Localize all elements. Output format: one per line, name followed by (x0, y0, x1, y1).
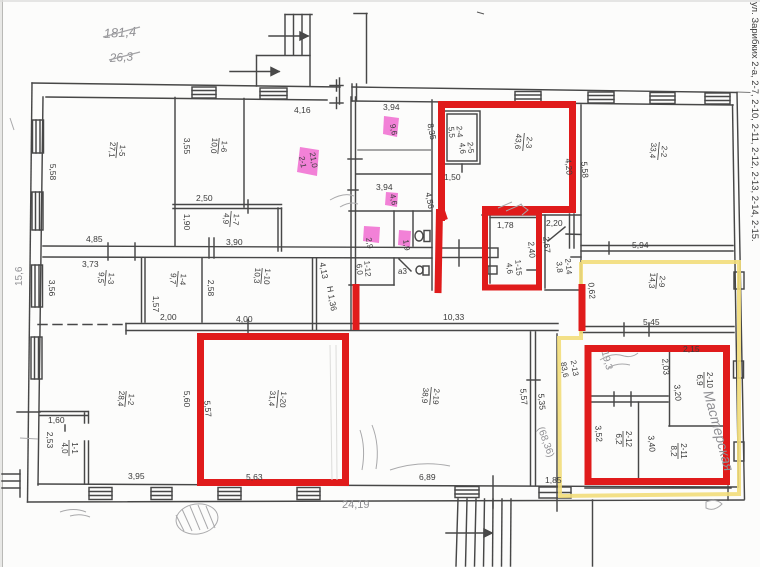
svg-text:2,03: 2,03 (660, 358, 671, 376)
svg-text:2,00: 2,00 (160, 312, 177, 322)
svg-text:24,19: 24,19 (342, 499, 370, 511)
svg-text:2,50: 2,50 (196, 193, 213, 203)
svg-text:9,7: 9,7 (168, 273, 178, 285)
svg-text:5,58: 5,58 (579, 161, 590, 179)
svg-text:3,55: 3,55 (182, 138, 192, 155)
svg-text:4,9: 4,9 (221, 213, 231, 225)
svg-text:0,62: 0,62 (586, 282, 597, 300)
svg-text:1,85: 1,85 (545, 475, 562, 485)
svg-text:33,4: 33,4 (648, 142, 658, 159)
svg-text:2,40: 2,40 (526, 241, 537, 259)
svg-text:3,95: 3,95 (128, 471, 145, 481)
svg-text:3,94: 3,94 (383, 102, 400, 112)
svg-text:5,35: 5,35 (536, 393, 547, 411)
svg-text:1,90: 1,90 (182, 214, 192, 231)
svg-text:8,2: 8,2 (669, 445, 678, 457)
svg-text:4,6: 4,6 (505, 262, 515, 274)
svg-text:1-5: 1-5 (117, 144, 127, 157)
svg-text:6,9: 6,9 (695, 374, 704, 386)
svg-text:5,5: 5,5 (447, 126, 457, 138)
svg-text:1-4: 1-4 (178, 273, 188, 286)
svg-text:3,73: 3,73 (82, 259, 99, 269)
svg-text:1-1: 1-1 (70, 442, 79, 454)
svg-text:5,63: 5,63 (246, 472, 263, 482)
svg-text:43,6: 43,6 (513, 133, 523, 150)
svg-text:5,94: 5,94 (632, 240, 649, 250)
svg-text:3,52: 3,52 (593, 425, 604, 443)
svg-text:6,0: 6,0 (355, 263, 365, 275)
svg-text:2,67: 2,67 (541, 236, 552, 254)
svg-text:6,89: 6,89 (419, 472, 436, 482)
svg-text:3,90: 3,90 (226, 237, 243, 247)
svg-text:ул. Зарибких 2-а, 2-7, 2-10, 2: ул. Зарибких 2-а, 2-7, 2-10, 2-11, 2-12,… (749, 2, 760, 242)
svg-text:9,5: 9,5 (96, 272, 106, 284)
svg-text:2-11: 2-11 (679, 443, 688, 459)
svg-text:3,40: 3,40 (646, 435, 657, 453)
svg-text:1-7: 1-7 (231, 213, 241, 226)
svg-text:2,20: 2,20 (546, 218, 563, 228)
svg-text:2-12: 2-12 (624, 431, 633, 448)
svg-text:4,0: 4,0 (60, 442, 69, 454)
svg-text:5,45: 5,45 (643, 317, 660, 327)
svg-text:15,6: 15,6 (14, 266, 25, 286)
svg-text:31,4: 31,4 (267, 390, 277, 407)
svg-text:4,16: 4,16 (294, 105, 311, 115)
svg-text:5,60: 5,60 (182, 391, 192, 408)
svg-text:2-19: 2-19 (431, 388, 441, 405)
svg-text:a3: a3 (398, 267, 407, 276)
svg-text:1,50: 1,50 (444, 172, 461, 182)
svg-text:1,60: 1,60 (48, 415, 65, 425)
svg-text:4,00: 4,00 (236, 314, 253, 324)
svg-text:2,58: 2,58 (206, 280, 216, 297)
svg-text:2-10: 2-10 (705, 372, 714, 389)
svg-text:1,57: 1,57 (151, 296, 161, 313)
svg-text:4,20: 4,20 (563, 158, 574, 176)
svg-text:3,94: 3,94 (376, 182, 393, 192)
svg-text:5,57: 5,57 (518, 388, 529, 406)
svg-text:3,20: 3,20 (672, 384, 683, 402)
svg-text:5,57: 5,57 (202, 400, 213, 418)
svg-text:5,58: 5,58 (48, 164, 58, 181)
svg-text:2,53: 2,53 (45, 432, 55, 449)
svg-text:3,8: 3,8 (554, 261, 564, 273)
svg-text:1-10: 1-10 (262, 268, 272, 285)
svg-text:1-20: 1-20 (278, 391, 288, 408)
svg-text:6,2: 6,2 (614, 433, 623, 445)
svg-text:3,56: 3,56 (47, 280, 57, 297)
svg-text:1-3: 1-3 (106, 272, 116, 285)
svg-text:4,85: 4,85 (86, 234, 103, 244)
svg-text:2-2: 2-2 (659, 145, 669, 158)
svg-text:10,33: 10,33 (443, 312, 465, 322)
svg-text:38,9: 38,9 (420, 387, 430, 404)
svg-text:4,6: 4,6 (458, 142, 468, 154)
svg-text:1-2: 1-2 (126, 393, 136, 406)
svg-text:2-9: 2-9 (657, 275, 667, 288)
svg-text:2,15: 2,15 (683, 344, 700, 354)
svg-text:2-3: 2-3 (524, 136, 534, 149)
svg-text:1-6: 1-6 (219, 140, 229, 153)
svg-text:1,78: 1,78 (497, 220, 514, 230)
